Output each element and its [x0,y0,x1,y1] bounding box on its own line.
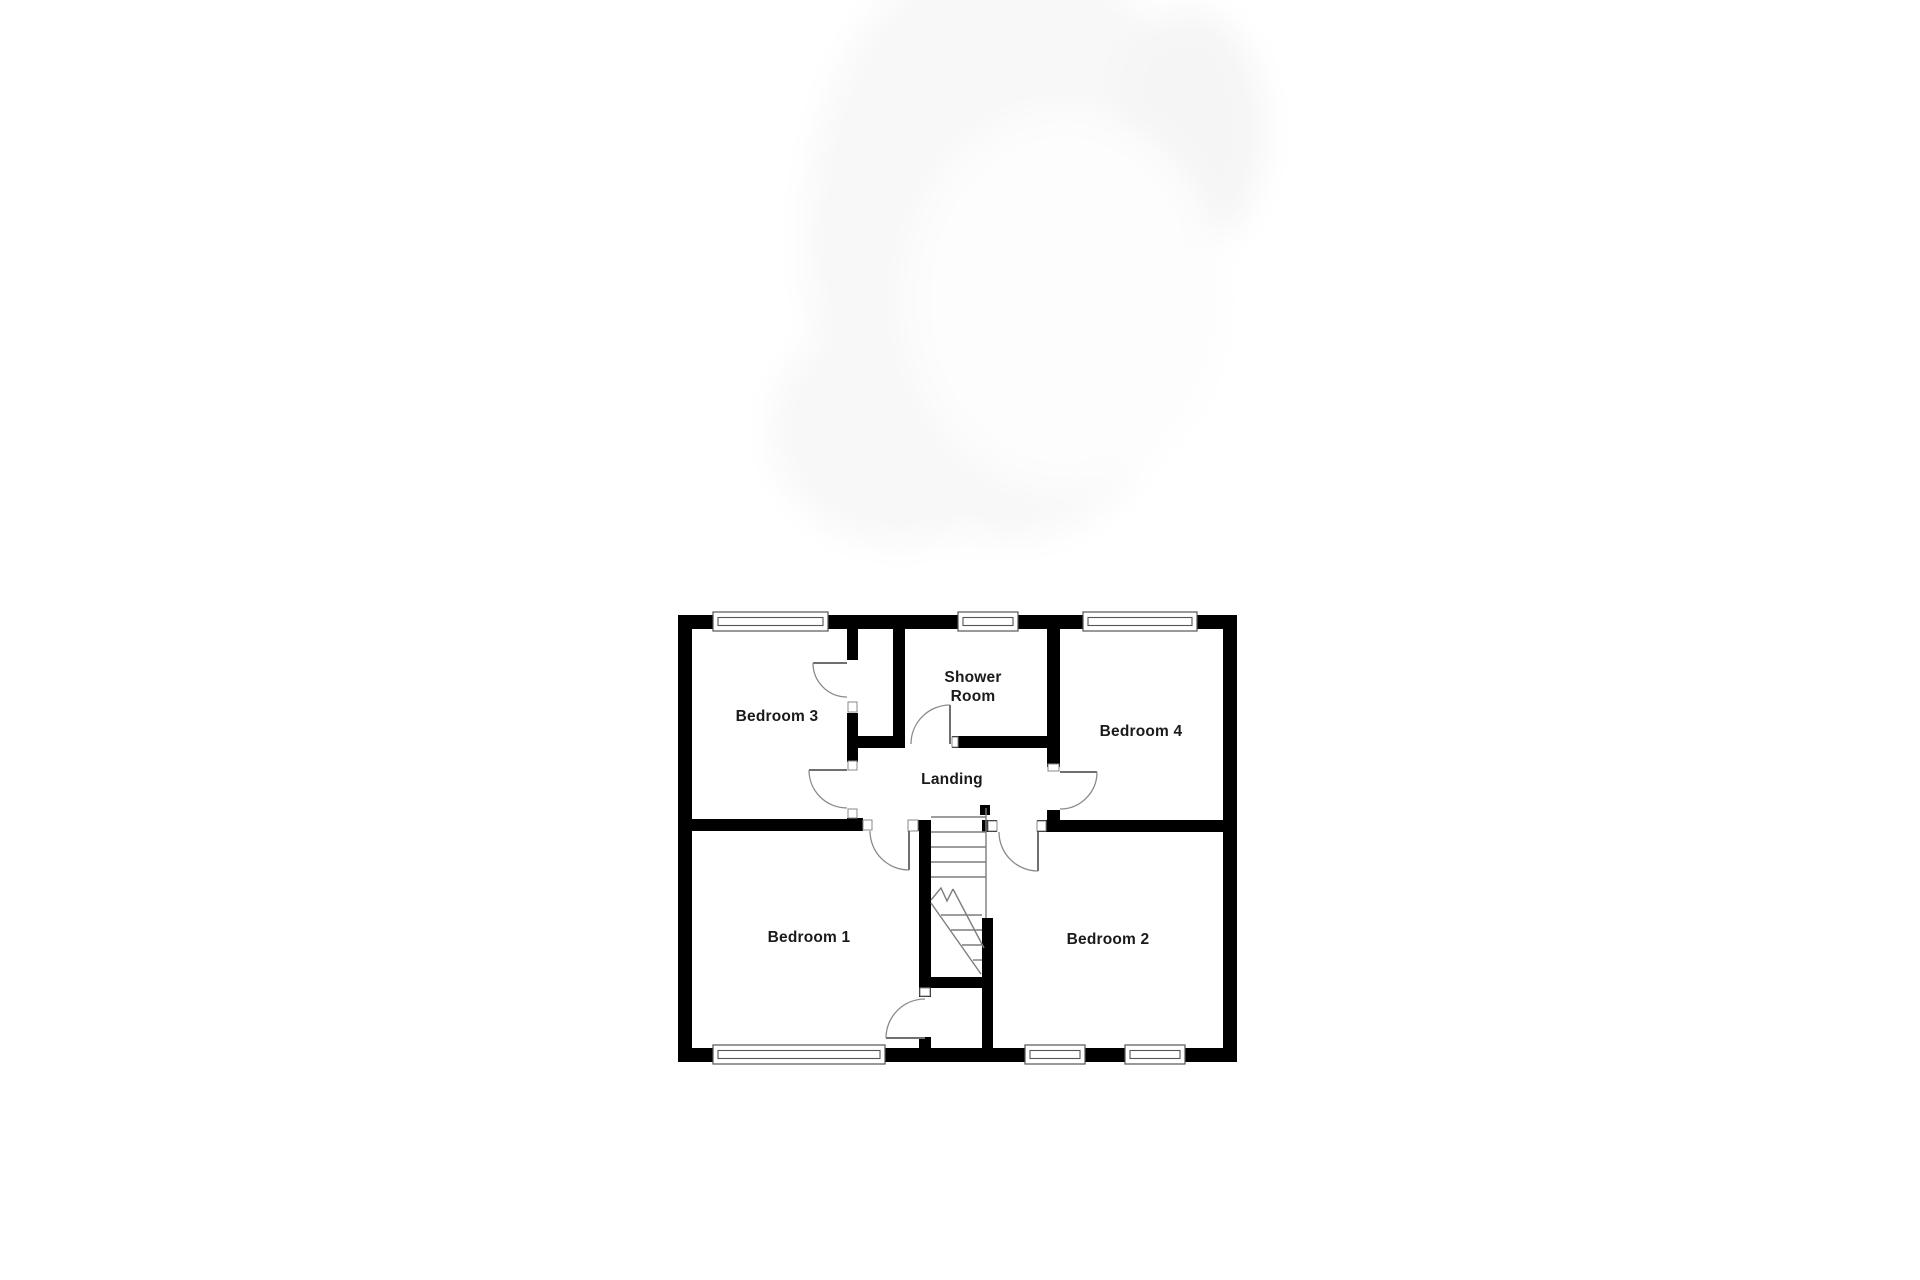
shower-room-left-wall [893,629,905,748]
bedroom4-door-stub [1047,810,1060,822]
jamb [1037,821,1046,831]
bedroom3-cupboard-wall-stub [847,629,858,660]
stair-diagonal [931,903,981,974]
floor-plan-image: Bedroom 3 Shower Room Bedroom 4 Landing … [0,0,1920,1280]
room-label-landing: Landing [921,771,983,788]
bedroom1-top-wall [692,819,863,831]
door-bedroom3 [809,770,847,808]
wall-left [678,615,692,1062]
stair-newel-post [980,805,990,815]
shower-room-bottom-wall [952,736,1047,748]
jamb [988,821,997,831]
window-shower-room [958,612,1018,631]
room-label-bedroom2: Bedroom 2 [1067,931,1150,948]
jamb [1048,764,1059,771]
bedroom3-right-wall-mid [847,713,858,736]
door-bedroom3-cupboard [813,663,847,697]
window-bedroom2-right [1125,1045,1185,1064]
window-bedroom3 [713,612,828,631]
window-bedroom1 [713,1045,885,1064]
door-bedroom1 [870,831,909,870]
page: Bedroom 3 Shower Room Bedroom 4 Landing … [0,0,1920,1280]
stair-break-line [931,888,953,901]
window-bedroom2-left [1025,1045,1085,1064]
bedroom4-left-wall [1047,629,1060,767]
jamb [952,737,958,747]
staircase [931,805,990,974]
stair-wall-top-piece [918,820,931,831]
bedroom2-left-wall [982,918,993,1050]
door-bedroom4 [1060,772,1097,809]
room-labels: Bedroom 3 Shower Room Bedroom 4 Landing … [736,669,1183,948]
jamb [848,702,857,712]
jamb [920,988,930,996]
room-label-bedroom3: Bedroom 3 [736,708,819,725]
room-label-shower-line2: Room [951,688,996,705]
stair-diagonal [953,889,984,948]
door-shower-room [911,705,950,744]
window-bedroom4 [1083,612,1197,631]
door-bedroom2 [999,832,1038,871]
jamb [863,820,872,830]
bedroom2-top-wall-right [1037,820,1225,832]
jamb [908,820,918,831]
watermark-blob [770,0,1265,545]
bedroom3-right-wall-low [847,748,858,762]
stair-left-wall [919,831,931,997]
room-label-shower-line1: Shower [944,669,1001,686]
room-label-bedroom1: Bedroom 1 [768,929,851,946]
jamb [848,809,857,818]
jamb [848,761,857,770]
understair-wall [931,977,982,988]
room-label-bedroom4: Bedroom 4 [1100,723,1183,740]
door-understair-cupboard [886,999,925,1038]
wall-right [1223,615,1237,1062]
